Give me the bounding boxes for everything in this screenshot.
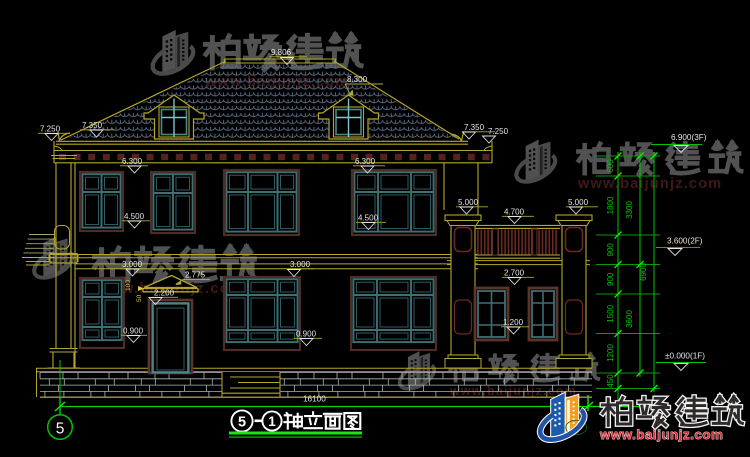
svg-text:450: 450 <box>606 374 615 388</box>
svg-text:1500: 1500 <box>606 304 615 322</box>
svg-text:4.500: 4.500 <box>124 212 145 221</box>
svg-text:1.200: 1.200 <box>503 318 524 327</box>
svg-text:3300: 3300 <box>625 201 634 219</box>
svg-text:5.000: 5.000 <box>458 198 479 207</box>
svg-text:www.baijunjz.com: www.baijunjz.com <box>577 176 722 192</box>
svg-text:1200: 1200 <box>606 344 615 362</box>
svg-text:8.300: 8.300 <box>347 75 368 84</box>
svg-text:3600: 3600 <box>625 310 634 328</box>
svg-text:7.350: 7.350 <box>82 121 103 130</box>
svg-text:0.900: 0.900 <box>123 327 144 336</box>
svg-text:900: 900 <box>606 243 615 257</box>
svg-text:6.300: 6.300 <box>355 157 376 166</box>
svg-text:5: 5 <box>238 415 246 431</box>
svg-text:7.250: 7.250 <box>40 125 61 134</box>
svg-text:16100: 16100 <box>303 395 326 404</box>
svg-text:100: 100 <box>125 280 132 291</box>
svg-text:50: 50 <box>136 294 143 302</box>
svg-text:6.900(3F): 6.900(3F) <box>671 133 707 142</box>
svg-text:4.500: 4.500 <box>358 214 379 223</box>
svg-text:0.900: 0.900 <box>296 330 317 339</box>
svg-text:1: 1 <box>268 414 276 429</box>
svg-text:1800: 1800 <box>606 196 615 214</box>
svg-text:3.600(2F): 3.600(2F) <box>667 237 703 246</box>
svg-text:2.200: 2.200 <box>154 289 175 298</box>
svg-text:7.350: 7.350 <box>464 123 485 132</box>
svg-text:5: 5 <box>56 421 65 438</box>
svg-text:3.000: 3.000 <box>290 260 311 269</box>
svg-text:6.300: 6.300 <box>122 157 143 166</box>
svg-text:2.775: 2.775 <box>185 271 206 280</box>
svg-text:2.700: 2.700 <box>504 269 525 278</box>
svg-text:3.000: 3.000 <box>122 260 143 269</box>
svg-text:7.250: 7.250 <box>488 127 509 136</box>
svg-text:±0.000(1F): ±0.000(1F) <box>665 352 705 361</box>
svg-text:6900: 6900 <box>639 263 648 281</box>
svg-text:5.000: 5.000 <box>568 198 589 207</box>
svg-text:900: 900 <box>606 272 615 286</box>
svg-text:4.700: 4.700 <box>504 208 525 217</box>
svg-text:600: 600 <box>606 159 615 173</box>
svg-text:9.806: 9.806 <box>271 48 292 57</box>
svg-text:www.baijunjz.com: www.baijunjz.com <box>599 427 723 442</box>
